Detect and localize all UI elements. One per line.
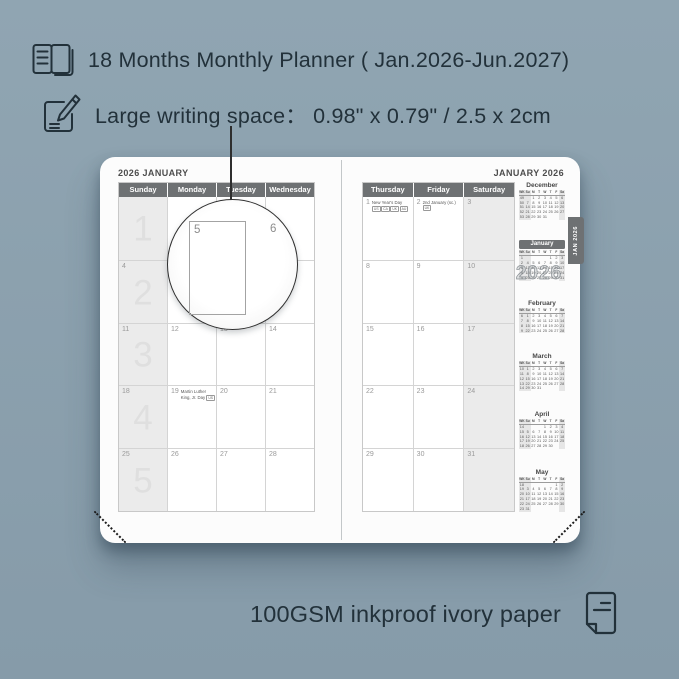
country-badge: US xyxy=(206,395,215,401)
mini-day-cell: 20 xyxy=(554,377,560,382)
day-cell: 24 xyxy=(463,385,514,448)
mini-day-cell: 16 xyxy=(531,377,537,382)
month-tab: JAN 2026 xyxy=(568,217,584,264)
year-watermark: 2026 xyxy=(506,263,572,285)
week-row: 151617 xyxy=(363,323,514,386)
planner-spread: 2026 JANUARY JANUARY 2026 SundayMondayTu… xyxy=(100,157,580,543)
mini-day-cell: 53 xyxy=(519,215,525,220)
mini-day-cell: 15 xyxy=(525,324,531,329)
mini-calendar-title: January xyxy=(519,240,565,249)
day-cell: 1 xyxy=(119,197,167,260)
week-number: 4 xyxy=(133,399,152,439)
month-tab-label: JAN 2026 xyxy=(573,226,579,256)
mini-day-cell: 23 xyxy=(531,329,537,334)
week-number: 2 xyxy=(133,273,152,313)
book-spine xyxy=(341,160,342,540)
date-number: 3 xyxy=(467,199,471,207)
day-cell: 13 xyxy=(216,323,265,386)
feature-writing-space-text: Large writing space： 0.98" x 0.79" / 2.5… xyxy=(95,99,551,130)
mini-day-cell: 17 xyxy=(536,324,542,329)
day-cell: 8 xyxy=(363,260,413,323)
mini-calendar-title: February xyxy=(519,300,565,307)
mini-day-cell: 31 xyxy=(542,215,548,220)
date-number: 26 xyxy=(171,451,179,459)
mini-day-cell: 18 xyxy=(542,377,548,382)
date-number: 21 xyxy=(269,388,277,396)
mini-day-cell: 27 xyxy=(559,210,565,215)
day-cell: 1New Year's Day USCAUKAU xyxy=(363,197,413,260)
mini-day-header: WK xyxy=(519,419,525,424)
mini-day-cell: 49 xyxy=(519,195,525,200)
holiday-label: New Year's Day USCAUKAU xyxy=(372,199,409,212)
week-number: 3 xyxy=(133,336,152,376)
mini-calendar: FebruaryWKSuMTWTFSa612345677891011121314… xyxy=(519,300,565,333)
weekday-header: Friday xyxy=(413,183,464,197)
mini-day-header: Su xyxy=(525,361,531,366)
week-number: 5 xyxy=(133,462,152,502)
date-number: 11 xyxy=(122,326,129,334)
open-book-icon xyxy=(31,42,75,79)
weekday-header-row: ThursdayFridaySaturday xyxy=(363,183,514,197)
holiday-label: 2nd January (sc.) UK xyxy=(423,199,463,211)
day-cell: 255 xyxy=(119,448,167,511)
mini-calendars: DecemberWKSuMTWTFSa491234565078910111213… xyxy=(519,182,565,512)
mini-day-cell: 28 xyxy=(525,215,531,220)
product-image: 18 Months Monthly Planner ( Jan.2026-Jun… xyxy=(0,0,679,679)
mini-day-cell: 27 xyxy=(531,444,537,449)
mini-day-cell: 25 xyxy=(542,329,548,334)
holiday-label: Martin Luther King, Jr. Day US xyxy=(181,388,216,400)
mini-day-cell xyxy=(559,507,565,512)
mini-day-cell: 21 xyxy=(559,377,565,382)
date-number: 29 xyxy=(366,451,374,459)
mini-day-cell: 29 xyxy=(542,444,548,449)
mini-day-cell: 25 xyxy=(542,382,548,387)
magnified-next-cell-date: 6 xyxy=(270,223,276,235)
mini-day-cell: 18 xyxy=(542,324,548,329)
date-number: 12 xyxy=(171,326,179,334)
mini-day-cell: 19 xyxy=(548,324,554,329)
magnifier-connector-line xyxy=(230,126,232,204)
day-cell: 9 xyxy=(413,260,464,323)
day-cell: 3 xyxy=(463,197,514,260)
day-cell: 26 xyxy=(167,448,216,511)
day-cell: 31 xyxy=(463,448,514,511)
mini-day-cell: 14 xyxy=(519,386,525,391)
mini-day-cell: 25 xyxy=(531,502,537,507)
feature-duration-text: 18 Months Monthly Planner ( Jan.2026-Jun… xyxy=(88,48,569,73)
mini-day-cell: 12 xyxy=(519,377,525,382)
mini-day-cell: 22 xyxy=(525,329,531,334)
date-number: 10 xyxy=(467,263,475,271)
mini-calendar-title: April xyxy=(519,411,565,418)
weekday-header: Tuesday xyxy=(216,183,265,197)
mini-day-cell: 25 xyxy=(548,210,554,215)
mini-day-header: Su xyxy=(525,477,531,482)
mini-day-cell: 27 xyxy=(542,502,548,507)
date-number: 25 xyxy=(122,451,130,459)
country-badge: AU xyxy=(400,206,409,212)
mini-day-cell: 29 xyxy=(531,215,537,220)
mini-day-cell: 10 xyxy=(536,319,542,324)
weekday-header: Thursday xyxy=(363,183,413,197)
week-row: 293031 xyxy=(363,448,514,511)
day-cell: 30 xyxy=(413,448,464,511)
date-number: 2 xyxy=(417,199,421,207)
weekday-header: Wednesday xyxy=(265,183,314,197)
date-number: 24 xyxy=(467,388,475,396)
mini-day-cell: 23 xyxy=(519,507,525,512)
mini-day-cell: 20 xyxy=(554,324,560,329)
mini-day-header: Su xyxy=(525,308,531,313)
date-number: 31 xyxy=(467,451,475,459)
mini-calendar-title: March xyxy=(519,353,565,360)
mini-day-cell: 30 xyxy=(559,502,565,507)
mini-day-cell: 19 xyxy=(548,377,554,382)
mini-day-cell: 31 xyxy=(525,507,531,512)
magnified-cell-date: 5 xyxy=(194,224,200,236)
magnified-cell: 5 xyxy=(189,221,246,315)
mini-day-cell: 30 xyxy=(548,444,554,449)
country-badge: UK xyxy=(390,206,399,212)
day-cell: 15 xyxy=(363,323,413,386)
date-number: 14 xyxy=(269,326,277,334)
mini-day-cell: 27 xyxy=(554,329,560,334)
mini-day-header: WK xyxy=(519,361,525,366)
date-number: 20 xyxy=(220,388,228,396)
mini-day-cell: 17 xyxy=(536,377,542,382)
day-cell: 28 xyxy=(265,448,314,511)
right-month-grid: ThursdayFridaySaturday1New Year's Day US… xyxy=(362,182,515,512)
paper-icon xyxy=(577,590,621,638)
mini-day-cell xyxy=(559,215,565,220)
perforation-dots-right xyxy=(553,511,586,544)
mini-day-cell: 12 xyxy=(548,319,554,324)
weekday-header: Monday xyxy=(167,183,216,197)
mini-day-header: WK xyxy=(519,308,525,313)
date-number: 1 xyxy=(366,199,370,207)
mini-day-cell: 15 xyxy=(519,430,525,435)
week-row: 113121314 xyxy=(119,323,314,386)
mini-day-cell: 15 xyxy=(525,377,531,382)
mini-calendar: MarchWKSuMTWTFSa101234567118910111213141… xyxy=(519,353,565,391)
date-number: 18 xyxy=(122,388,130,396)
date-number: 22 xyxy=(366,388,374,396)
mini-day-cell: 26 xyxy=(548,329,554,334)
mini-day-cell: 28 xyxy=(559,382,565,387)
pencil-note-icon xyxy=(42,93,82,135)
day-cell: 22 xyxy=(363,385,413,448)
magnifier-circle: 5 6 xyxy=(167,199,298,330)
week-row: 8910 xyxy=(363,260,514,323)
day-cell: 113 xyxy=(119,323,167,386)
mini-day-cell: 30 xyxy=(536,215,542,220)
mini-day-cell: 10 xyxy=(536,372,542,377)
mini-day-header: Su xyxy=(525,190,531,195)
day-cell: 29 xyxy=(363,448,413,511)
mini-day-cell: 18 xyxy=(519,444,525,449)
mini-day-cell: 26 xyxy=(554,210,560,215)
mini-day-cell: 25 xyxy=(559,439,565,444)
weekday-header: Sunday xyxy=(119,183,167,197)
mini-calendar: DecemberWKSuMTWTFSa491234565078910111213… xyxy=(519,182,565,220)
date-number: 15 xyxy=(366,326,374,334)
perforation-dots-left xyxy=(94,511,127,544)
country-badge: US xyxy=(372,206,381,212)
date-number: 19 xyxy=(171,388,179,396)
day-cell: 20 xyxy=(216,385,265,448)
day-cell: 16 xyxy=(413,323,464,386)
mini-day-cell: 12 xyxy=(548,372,554,377)
feature-paper: 100GSM inkproof ivory paper xyxy=(250,590,621,638)
day-cell: 22nd January (sc.) UK xyxy=(413,197,464,260)
mini-day-cell: 26 xyxy=(548,382,554,387)
date-number: 30 xyxy=(417,451,425,459)
date-number: 17 xyxy=(467,326,475,334)
day-cell: 184 xyxy=(119,385,167,448)
mini-calendar: AprilWKSuMTWTFSa141234155678910111612131… xyxy=(519,411,565,449)
date-number: 4 xyxy=(122,263,126,271)
country-badge: UK xyxy=(423,205,432,211)
mini-day-cell: 14 xyxy=(559,372,565,377)
day-cell: 14 xyxy=(265,323,314,386)
day-cell: 12 xyxy=(167,323,216,386)
day-cell: 19Martin Luther King, Jr. Day US xyxy=(167,385,216,448)
day-cell: 27 xyxy=(216,448,265,511)
mini-day-cell: 10 xyxy=(554,430,560,435)
mini-day-cell: 10 xyxy=(519,366,525,371)
mini-day-cell xyxy=(559,444,565,449)
day-cell: 17 xyxy=(463,323,514,386)
date-number: 8 xyxy=(366,263,370,271)
feature-paper-text: 100GSM inkproof ivory paper xyxy=(250,601,561,628)
week-row: 1New Year's Day USCAUKAU22nd January (sc… xyxy=(363,197,514,260)
mini-day-cell xyxy=(559,386,565,391)
mini-day-header: WK xyxy=(519,190,525,195)
mini-day-cell: 21 xyxy=(559,324,565,329)
date-number: 27 xyxy=(220,451,228,459)
mini-day-cell: 28 xyxy=(536,444,542,449)
week-row: 18419Martin Luther King, Jr. Day US2021 xyxy=(119,385,314,448)
week-row: 222324 xyxy=(363,385,514,448)
mini-day-cell: 31 xyxy=(536,386,542,391)
date-number: 9 xyxy=(417,263,421,271)
date-number: 28 xyxy=(269,451,277,459)
weekday-header: Saturday xyxy=(463,183,514,197)
country-badge: CA xyxy=(381,206,390,212)
week-number: 1 xyxy=(133,210,152,250)
mini-day-cell: 13 xyxy=(554,319,560,324)
mini-day-cell: 24 xyxy=(554,439,560,444)
mini-day-cell: 30 xyxy=(531,386,537,391)
mini-day-cell: 28 xyxy=(559,329,565,334)
mini-day-cell: 29 xyxy=(525,386,531,391)
feature-writing-space: Large writing space： 0.98" x 0.79" / 2.5… xyxy=(42,93,551,135)
feature-duration: 18 Months Monthly Planner ( Jan.2026-Jun… xyxy=(31,42,569,79)
mini-day-cell: 16 xyxy=(531,324,537,329)
mini-day-cell: 26 xyxy=(525,444,531,449)
day-cell: 42 xyxy=(119,260,167,323)
mini-day-header: Su xyxy=(525,250,531,255)
mini-day-cell: 28 xyxy=(548,502,554,507)
mini-day-cell: 14 xyxy=(519,424,525,429)
mini-calendar-title: December xyxy=(519,182,565,189)
right-page-title: JANUARY 2026 xyxy=(494,168,564,178)
week-row: 255262728 xyxy=(119,448,314,511)
mini-day-cell: 26 xyxy=(536,502,542,507)
mini-day-cell: 24 xyxy=(536,329,542,334)
mini-day-cell: 29 xyxy=(554,502,560,507)
weekday-header-row: SundayMondayTuesdayWednesday xyxy=(119,183,314,197)
day-cell: 23 xyxy=(413,385,464,448)
mini-day-header: WK xyxy=(519,477,525,482)
mini-calendar-title: May xyxy=(519,469,565,476)
date-number: 23 xyxy=(417,388,425,396)
left-page-title: 2026 JANUARY xyxy=(118,168,189,178)
mini-calendar: MayWKSuMTWTFSa18121934567892010111213141… xyxy=(519,469,565,512)
day-cell: 21 xyxy=(265,385,314,448)
date-number: 16 xyxy=(417,326,425,334)
mini-day-cell: 14 xyxy=(559,319,565,324)
mini-day-cell: 13 xyxy=(554,372,560,377)
mini-day-header: Su xyxy=(525,419,531,424)
mini-day-cell: 27 xyxy=(554,382,560,387)
mini-day-header: WK xyxy=(519,250,525,255)
